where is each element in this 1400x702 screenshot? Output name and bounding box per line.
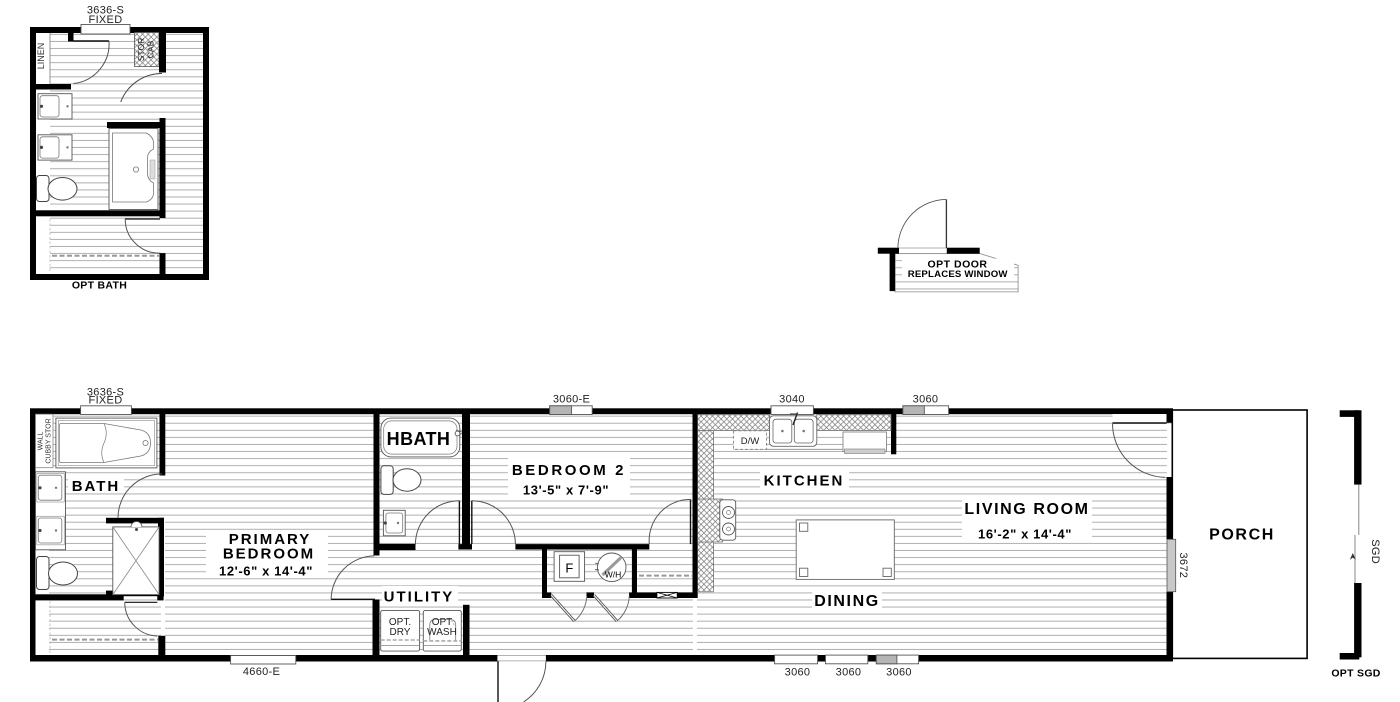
svg-text:3060-E: 3060-E: [553, 394, 590, 406]
svg-text:OPT SGD: OPT SGD: [1331, 668, 1380, 680]
svg-text:SGD: SGD: [1369, 539, 1381, 564]
svg-text:DRY: DRY: [390, 627, 411, 638]
svg-text:OPT BATH: OPT BATH: [72, 279, 127, 291]
svg-text:3060: 3060: [913, 394, 939, 406]
svg-text:4660-E: 4660-E: [243, 666, 280, 678]
svg-text:WALL: WALL: [38, 431, 45, 450]
svg-text:3060: 3060: [886, 666, 912, 678]
svg-text:CAB: CAB: [146, 40, 156, 58]
svg-text:FIXED: FIXED: [89, 14, 123, 26]
svg-text:FIXED: FIXED: [89, 394, 123, 406]
svg-text:D/W: D/W: [741, 436, 760, 447]
svg-text:13'-5" x 7'-9": 13'-5" x 7'-9": [523, 483, 609, 498]
svg-text:BEDROOM: BEDROOM: [223, 546, 315, 563]
svg-text:F: F: [565, 561, 573, 576]
svg-text:DINING: DINING: [814, 593, 880, 610]
svg-text:KITCHEN: KITCHEN: [764, 472, 845, 489]
svg-text:3060: 3060: [836, 666, 862, 678]
svg-text:3672: 3672: [1177, 553, 1189, 579]
svg-text:CUBBY STOR: CUBBY STOR: [46, 418, 53, 463]
svg-text:HBATH: HBATH: [387, 429, 451, 449]
svg-text:LIVING ROOM: LIVING ROOM: [964, 501, 1089, 518]
svg-text:BEDROOM 2: BEDROOM 2: [512, 462, 626, 479]
svg-text:LINEN: LINEN: [36, 43, 46, 70]
svg-text:WASH: WASH: [427, 627, 457, 638]
svg-text:12'-6" x 14'-4": 12'-6" x 14'-4": [219, 563, 313, 578]
svg-text:3060: 3060: [785, 666, 811, 678]
svg-text:W/H: W/H: [605, 570, 622, 580]
svg-text:STOR: STOR: [136, 38, 146, 61]
svg-text:16'-2" x 14'-4": 16'-2" x 14'-4": [978, 526, 1072, 541]
svg-text:BATH: BATH: [72, 478, 121, 495]
svg-text:3040: 3040: [779, 394, 805, 406]
svg-text:REPLACES WINDOW: REPLACES WINDOW: [908, 269, 1009, 280]
svg-text:PORCH: PORCH: [1209, 526, 1275, 543]
svg-text:UTILITY: UTILITY: [384, 588, 455, 605]
